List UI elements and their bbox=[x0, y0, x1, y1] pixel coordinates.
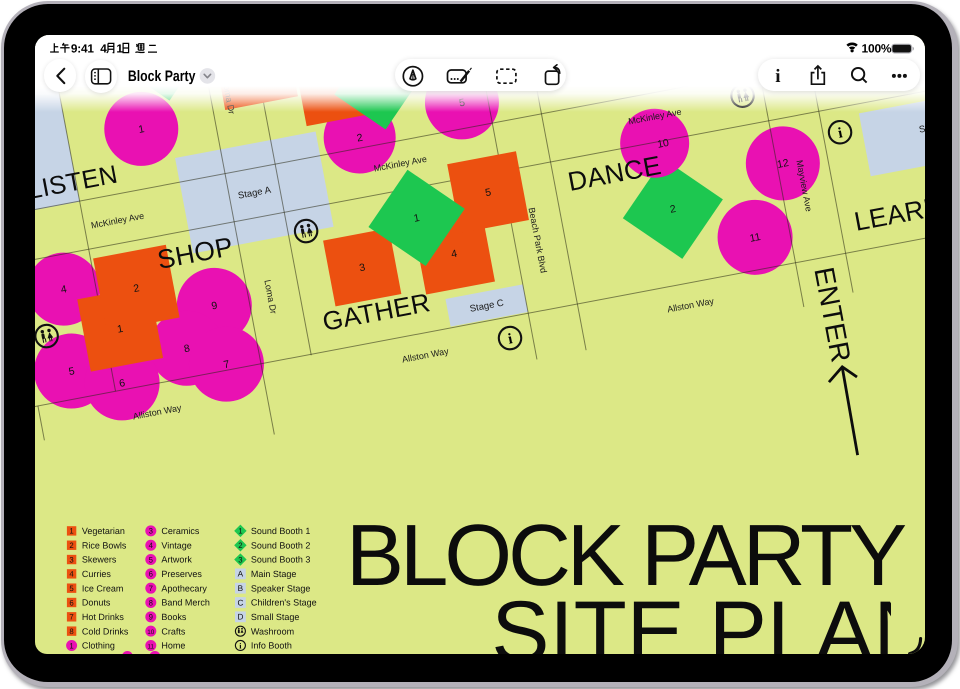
svg-text:Hot Drinks: Hot Drinks bbox=[81, 612, 124, 622]
svg-text:Rice Bowls: Rice Bowls bbox=[81, 540, 126, 550]
svg-text:Sound Booth 3: Sound Booth 3 bbox=[250, 554, 310, 564]
svg-text:Beach Park Blvd: Beach Park Blvd bbox=[526, 206, 548, 273]
svg-text:5: 5 bbox=[69, 584, 74, 593]
svg-text:2: 2 bbox=[238, 541, 242, 550]
svg-text:Loma Dr: Loma Dr bbox=[262, 279, 278, 315]
svg-text:LEARN: LEARN bbox=[851, 190, 924, 236]
svg-text:Vintage: Vintage bbox=[161, 540, 191, 550]
svg-text:3: 3 bbox=[238, 555, 242, 564]
svg-text:McKinley Ave: McKinley Ave bbox=[90, 210, 145, 230]
svg-text:9:41: 9:41 bbox=[70, 41, 93, 55]
svg-text:SHOP: SHOP bbox=[155, 231, 236, 275]
svg-text:6: 6 bbox=[148, 569, 152, 578]
svg-text:3: 3 bbox=[69, 555, 73, 564]
svg-text:Skewers: Skewers bbox=[81, 554, 116, 564]
svg-text:4: 4 bbox=[148, 541, 153, 550]
svg-text:Main Stage: Main Stage bbox=[250, 569, 296, 579]
svg-text:2: 2 bbox=[69, 541, 73, 550]
svg-text:Ice Cream: Ice Cream bbox=[81, 583, 123, 593]
svg-text:4: 4 bbox=[69, 569, 74, 578]
svg-text:Vegetarian: Vegetarian bbox=[81, 526, 124, 536]
svg-text:Band Merch: Band Merch bbox=[161, 597, 210, 607]
svg-text:D: D bbox=[237, 612, 243, 621]
svg-text:Block Party: Block Party bbox=[127, 68, 195, 85]
svg-text:1: 1 bbox=[238, 526, 242, 535]
svg-text:11: 11 bbox=[748, 231, 761, 245]
svg-text:3: 3 bbox=[148, 526, 152, 535]
svg-text:Donuts: Donuts bbox=[81, 597, 110, 607]
svg-text:Small Stage: Small Stage bbox=[250, 612, 299, 622]
svg-text:Sound Booth 2: Sound Booth 2 bbox=[250, 540, 310, 550]
svg-text:i: i bbox=[506, 331, 513, 347]
svg-text:4: 4 bbox=[100, 41, 107, 55]
svg-text:Allston Way: Allston Way bbox=[666, 295, 715, 314]
svg-text:7: 7 bbox=[69, 612, 73, 621]
svg-text:Apothecary: Apothecary bbox=[161, 583, 207, 593]
svg-text:Washroom: Washroom bbox=[250, 626, 293, 636]
svg-text:Home: Home bbox=[161, 640, 185, 650]
svg-text:1: 1 bbox=[69, 526, 73, 535]
svg-text:Artwork: Artwork bbox=[161, 554, 192, 564]
svg-text:Books: Books bbox=[161, 612, 187, 622]
svg-text:Children's Stage: Children's Stage bbox=[250, 597, 316, 607]
svg-text:Sound Booth 1: Sound Booth 1 bbox=[250, 526, 310, 536]
svg-text:8: 8 bbox=[148, 598, 152, 607]
svg-text:6: 6 bbox=[69, 598, 73, 607]
svg-text:Preserves: Preserves bbox=[161, 569, 202, 579]
svg-text:100%: 100% bbox=[861, 41, 891, 55]
svg-text:10: 10 bbox=[147, 629, 155, 636]
svg-text:9: 9 bbox=[148, 612, 152, 621]
svg-text:Curries: Curries bbox=[81, 569, 111, 579]
svg-text:Clothing: Clothing bbox=[81, 640, 114, 650]
svg-text:B: B bbox=[237, 584, 243, 593]
svg-text:5: 5 bbox=[148, 555, 153, 564]
svg-text:7: 7 bbox=[148, 584, 152, 593]
svg-text:ENTER: ENTER bbox=[808, 264, 856, 364]
svg-text:A: A bbox=[237, 569, 243, 578]
svg-text:Crafts: Crafts bbox=[161, 626, 186, 636]
svg-text:Speaker Stage: Speaker Stage bbox=[250, 583, 310, 593]
svg-text:i: i bbox=[775, 66, 780, 87]
svg-text:Info Booth: Info Booth bbox=[250, 640, 291, 650]
svg-text:11: 11 bbox=[147, 643, 154, 650]
svg-text:1: 1 bbox=[69, 641, 73, 650]
svg-text:Ceramics: Ceramics bbox=[161, 526, 200, 536]
svg-text:Allston Way: Allston Way bbox=[401, 346, 450, 365]
svg-text:Cold Drinks: Cold Drinks bbox=[81, 626, 128, 636]
svg-text:C: C bbox=[237, 598, 243, 607]
svg-text:8: 8 bbox=[69, 627, 73, 636]
svg-text:SITE PLAN: SITE PLAN bbox=[491, 583, 925, 653]
svg-text:i: i bbox=[239, 641, 242, 650]
svg-text:12: 12 bbox=[776, 157, 790, 171]
svg-text:1: 1 bbox=[116, 41, 123, 55]
